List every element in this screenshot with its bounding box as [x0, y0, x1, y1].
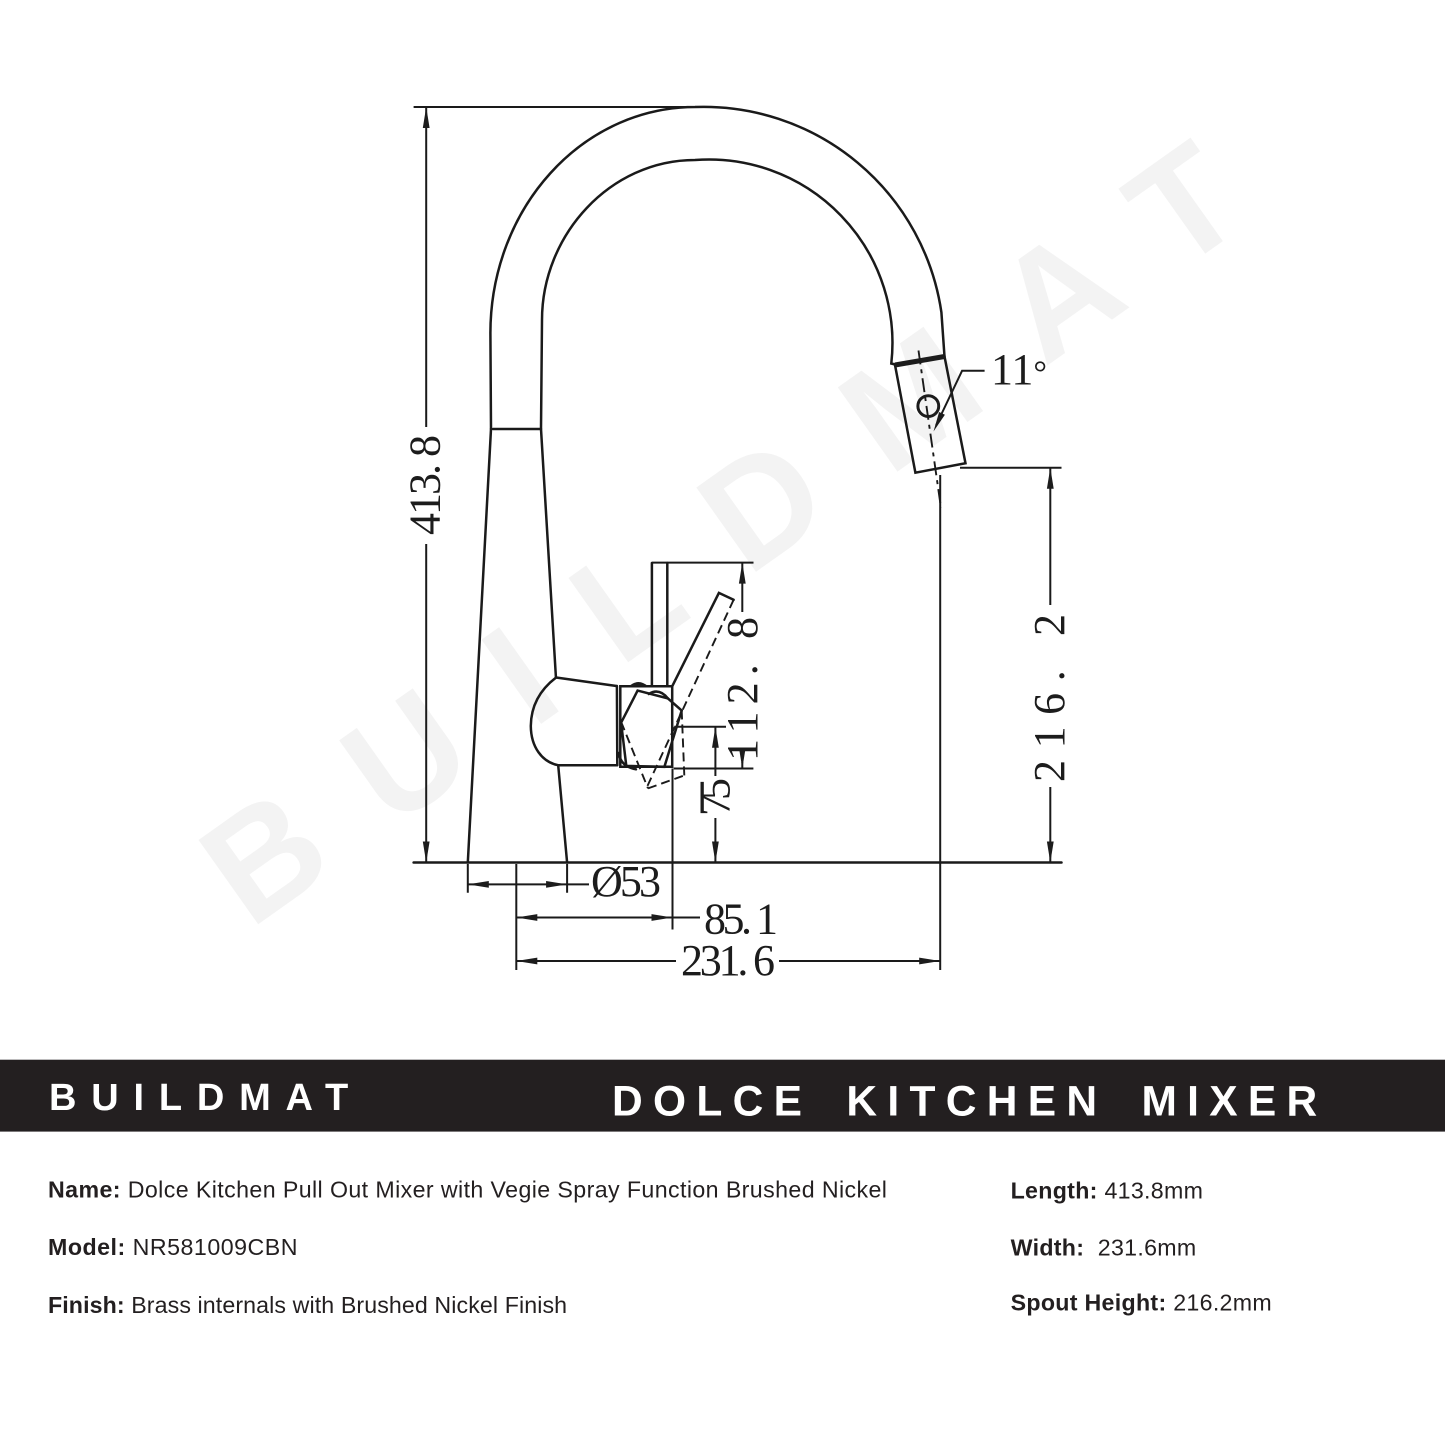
svg-text:Finish: Brass internals with B: Finish: Brass internals with Brushed Nic…: [48, 1292, 567, 1318]
svg-text:231. 6: 231. 6: [681, 936, 775, 985]
svg-text:BUILDMAT: BUILDMAT: [49, 1077, 363, 1119]
svg-text:Name: Dolce Kitchen Pull Out M: Name: Dolce Kitchen Pull Out Mixer with …: [48, 1176, 887, 1202]
svg-text:Model: NR581009CBN: Model: NR581009CBN: [48, 1234, 298, 1260]
svg-text:DOLCE KITCHEN MIXER: DOLCE KITCHEN MIXER: [612, 1079, 1328, 1126]
svg-text:Spout Height: 216.2mm: Spout Height: 216.2mm: [1011, 1290, 1272, 1316]
svg-text:75: 75: [691, 778, 740, 816]
svg-text:Length: 413.8mm: Length: 413.8mm: [1011, 1178, 1204, 1204]
svg-text:Ø53: Ø53: [591, 857, 661, 906]
svg-text:Width: 231.6mm: Width: 231.6mm: [1011, 1235, 1197, 1261]
svg-text:413. 8: 413. 8: [401, 435, 450, 535]
